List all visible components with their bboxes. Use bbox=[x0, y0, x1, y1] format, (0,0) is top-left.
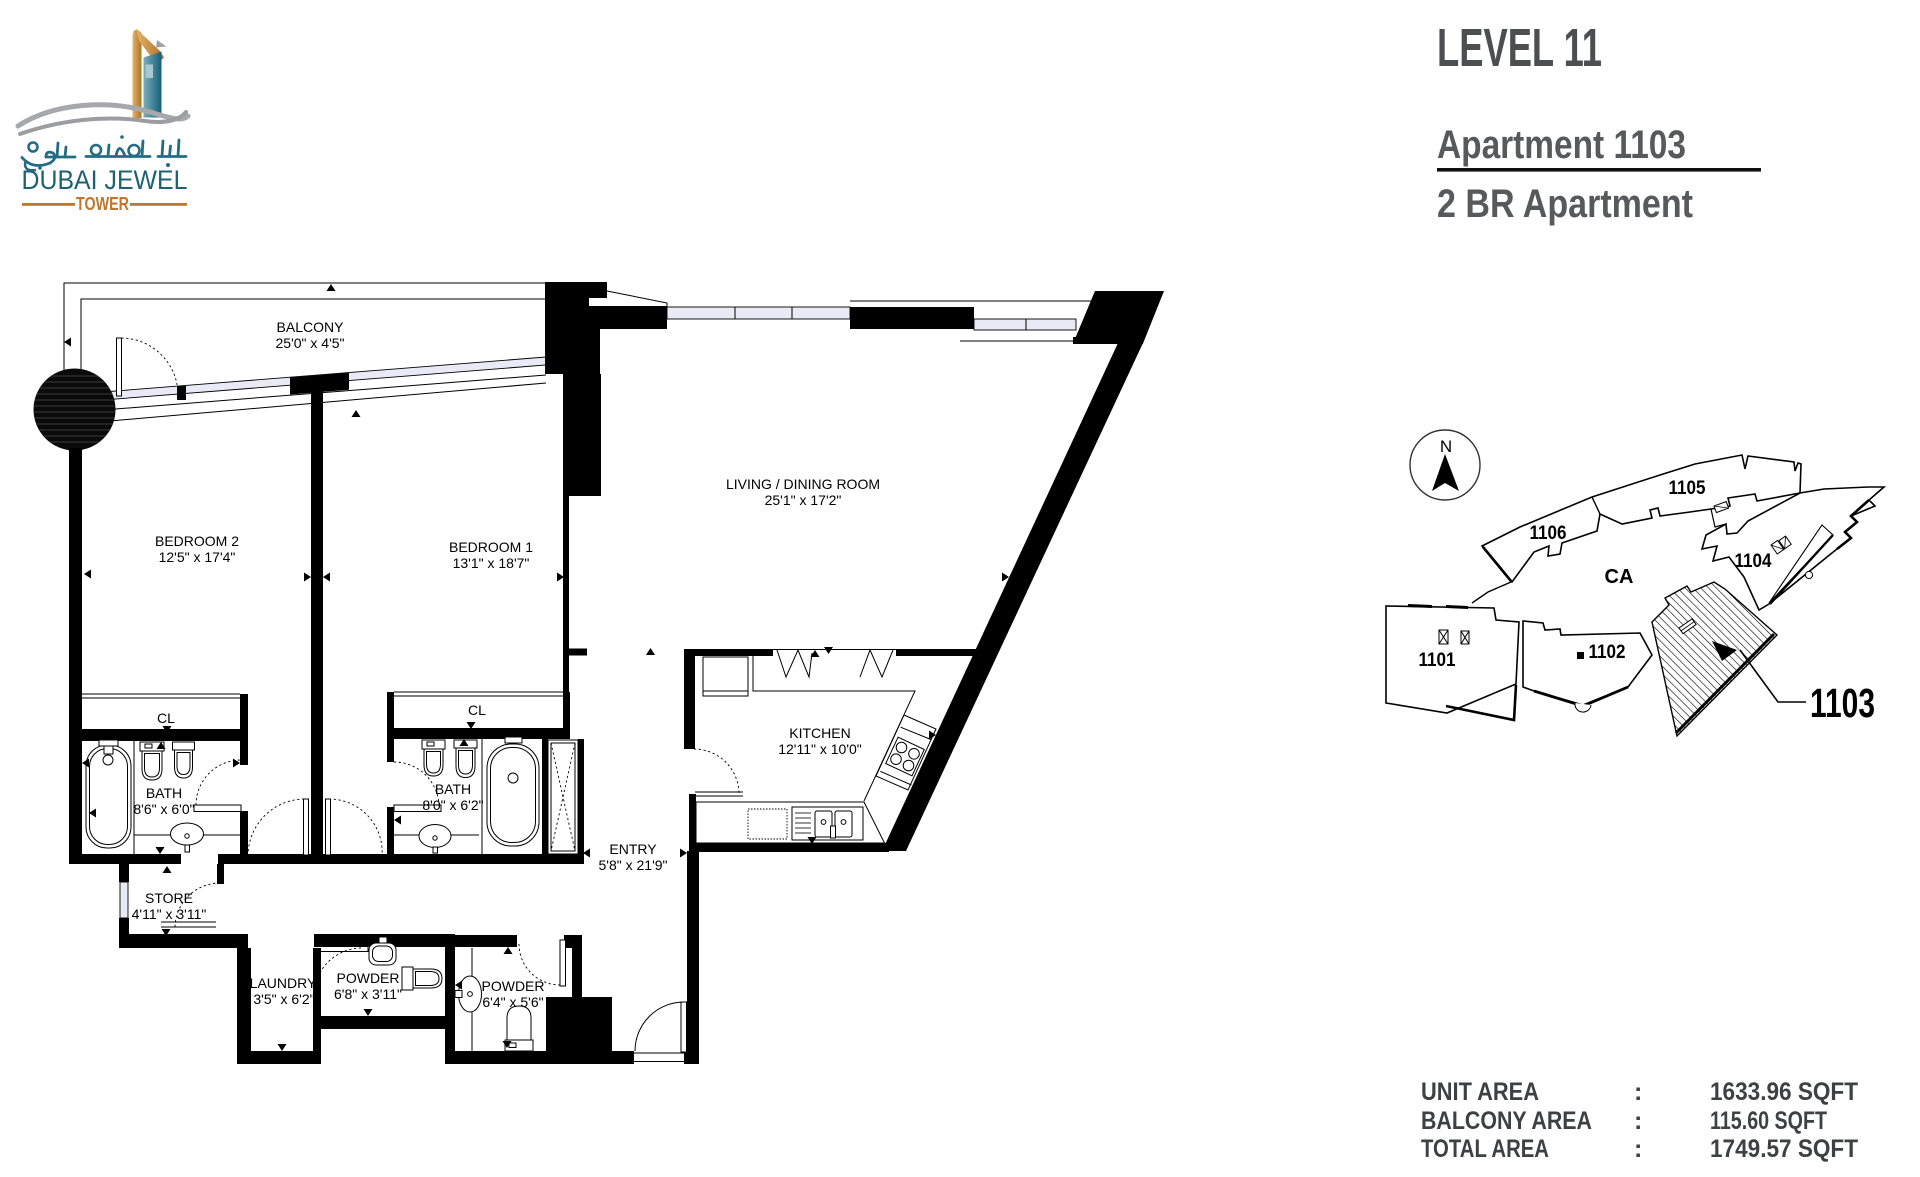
svg-text:LAUNDRY: LAUNDRY bbox=[250, 975, 317, 991]
svg-text:8'0" x 6'2": 8'0" x 6'2" bbox=[422, 797, 483, 813]
svg-text:N: N bbox=[1440, 437, 1452, 456]
svg-text:5'8" x 21'9": 5'8" x 21'9" bbox=[599, 857, 668, 873]
svg-text:BEDROOM 2: BEDROOM 2 bbox=[155, 533, 239, 549]
svg-text:LIVING / DINING ROOM: LIVING / DINING ROOM bbox=[726, 476, 880, 492]
svg-text:1106: 1106 bbox=[1530, 523, 1567, 544]
svg-text:CL: CL bbox=[157, 710, 175, 726]
svg-text:1103: 1103 bbox=[1810, 680, 1875, 726]
svg-text:115.60 SQFT: 115.60 SQFT bbox=[1710, 1107, 1827, 1135]
svg-text:1633.96 SQFT: 1633.96 SQFT bbox=[1710, 1078, 1858, 1106]
svg-text:TOTAL AREA: TOTAL AREA bbox=[1421, 1135, 1549, 1163]
svg-text:KITCHEN: KITCHEN bbox=[789, 725, 850, 741]
svg-text:3'5" x 6'2": 3'5" x 6'2" bbox=[253, 991, 314, 1007]
svg-text:ENTRY: ENTRY bbox=[609, 841, 657, 857]
svg-text:BALCONY AREA: BALCONY AREA bbox=[1421, 1107, 1592, 1135]
svg-text:BEDROOM 1: BEDROOM 1 bbox=[449, 539, 533, 555]
svg-text:LEVEL 11: LEVEL 11 bbox=[1437, 18, 1602, 78]
svg-text:POWDER: POWDER bbox=[482, 978, 545, 994]
svg-text:Apartment 1103: Apartment 1103 bbox=[1437, 123, 1686, 167]
svg-text:6'8" x 3'11": 6'8" x 3'11" bbox=[334, 986, 402, 1002]
svg-text:1104: 1104 bbox=[1735, 551, 1772, 572]
svg-text:6'4" x 5'6": 6'4" x 5'6" bbox=[482, 994, 543, 1010]
svg-text::: : bbox=[1634, 1078, 1642, 1106]
svg-text:25'1" x 17'2": 25'1" x 17'2" bbox=[765, 492, 842, 508]
svg-text:DUBAI JEWEL: DUBAI JEWEL bbox=[22, 165, 188, 195]
svg-text:TOWER: TOWER bbox=[76, 193, 129, 214]
svg-text:POWDER: POWDER bbox=[337, 970, 400, 986]
svg-text:STORE: STORE bbox=[145, 890, 193, 906]
svg-text:8'6" x 6'0": 8'6" x 6'0" bbox=[133, 801, 194, 817]
svg-text:UNIT AREA: UNIT AREA bbox=[1421, 1078, 1539, 1106]
svg-text:12'5" x 17'4": 12'5" x 17'4" bbox=[159, 549, 236, 565]
svg-text:1749.57 SQFT: 1749.57 SQFT bbox=[1710, 1135, 1858, 1163]
svg-text:CL: CL bbox=[468, 702, 486, 718]
svg-text:BATH: BATH bbox=[146, 785, 182, 801]
svg-text:1102: 1102 bbox=[1589, 642, 1626, 663]
svg-text:25'0" x 4'5": 25'0" x 4'5" bbox=[276, 335, 345, 351]
svg-text:2 BR Apartment: 2 BR Apartment bbox=[1437, 182, 1693, 226]
svg-text:12'11" x 10'0": 12'11" x 10'0" bbox=[778, 741, 862, 757]
svg-text:1101: 1101 bbox=[1419, 650, 1456, 671]
svg-text:CA: CA bbox=[1605, 566, 1634, 588]
svg-text:4'11" x 3'11": 4'11" x 3'11" bbox=[132, 906, 207, 922]
svg-text:BALCONY: BALCONY bbox=[277, 319, 345, 335]
svg-text:13'1" x 18'7": 13'1" x 18'7" bbox=[453, 555, 530, 571]
svg-text::: : bbox=[1634, 1135, 1642, 1163]
svg-text:BATH: BATH bbox=[435, 781, 471, 797]
svg-text:1105: 1105 bbox=[1669, 478, 1706, 499]
svg-text::: : bbox=[1634, 1107, 1642, 1135]
